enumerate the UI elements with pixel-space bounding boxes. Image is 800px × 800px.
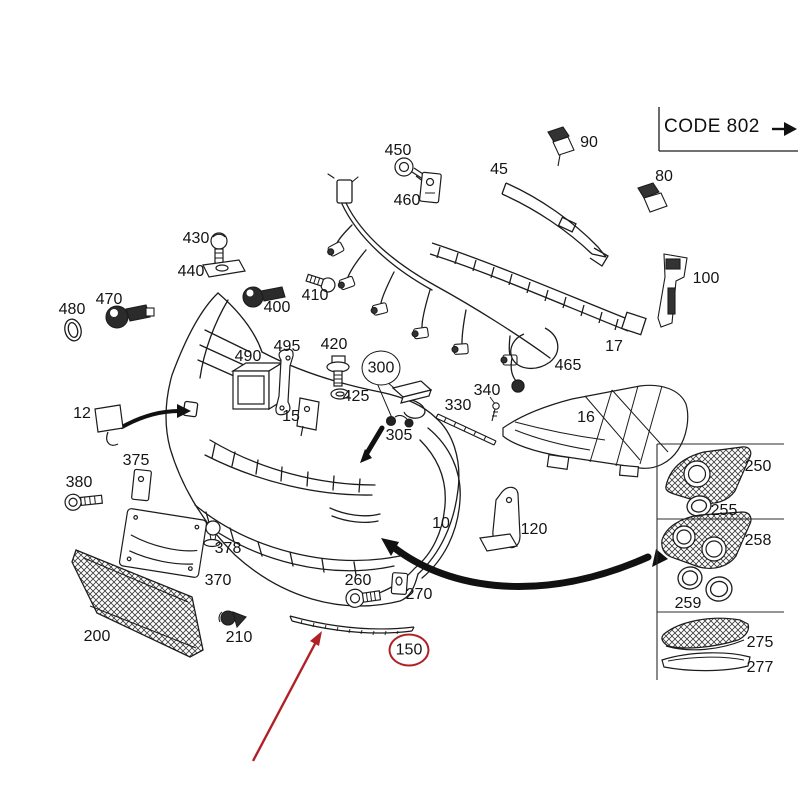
code-802-label: CODE 802: [664, 116, 760, 138]
part-480-sensor-ring: [63, 317, 84, 342]
washer-location-arrow: [360, 428, 382, 463]
part-270-clip: [391, 573, 407, 595]
part-490-control-module: [233, 363, 282, 409]
part-45-bracket-bar: [502, 183, 608, 266]
part-275-grille-strip: [662, 618, 749, 650]
part-277-trim-strip: [662, 653, 750, 671]
harness-connectors: [326, 241, 517, 365]
part-120-side-bracket: [480, 487, 520, 551]
part-340-screw: [490, 397, 499, 421]
part-250-fog-grille: [666, 447, 751, 503]
part-465-sensor-cable-loop: [511, 328, 558, 392]
fog-grille-pointer-arrow: [381, 538, 668, 586]
part-90-bracket: [548, 127, 574, 166]
part-259-trim-rings: [676, 565, 734, 604]
red-pointer-arrow: [253, 631, 322, 761]
parts-diagram-canvas: 4504609045804304404004104704801001746549…: [0, 0, 800, 800]
part-17-impact-absorber: [430, 243, 646, 335]
part-258-fog-grille: [662, 512, 751, 568]
part-420-bolt: [327, 356, 349, 386]
part-300-headlamp-washer-cover: [377, 381, 431, 418]
tow-eye-pointer-arrow: [122, 404, 191, 427]
part-380-screw: [64, 491, 102, 511]
part-470-parking-sensor: [106, 305, 154, 328]
part-15-bracket: [297, 398, 319, 436]
part-210-sensor: [219, 611, 246, 627]
part-12-tow-eye-cover: [95, 405, 123, 445]
part-330-trim-strip: [436, 414, 496, 445]
part-378-screw: [204, 521, 220, 547]
part-100-bracket: [658, 254, 687, 327]
part-425-washer: [331, 389, 349, 399]
part-370-license-plate-bracket: [119, 508, 207, 578]
part-460-clip: [419, 172, 441, 203]
part-80-bracket: [638, 183, 667, 212]
part-440-bracket: [203, 260, 245, 277]
part-410-screw: [305, 271, 337, 293]
part-375-bracket: [131, 469, 151, 501]
part-16-bumper-reinforcement: [503, 385, 688, 476]
code-802-arrow-icon: [772, 122, 797, 136]
part-400-parking-sensor: [243, 287, 285, 307]
part-150-chrome-trim-strip: [290, 616, 414, 635]
